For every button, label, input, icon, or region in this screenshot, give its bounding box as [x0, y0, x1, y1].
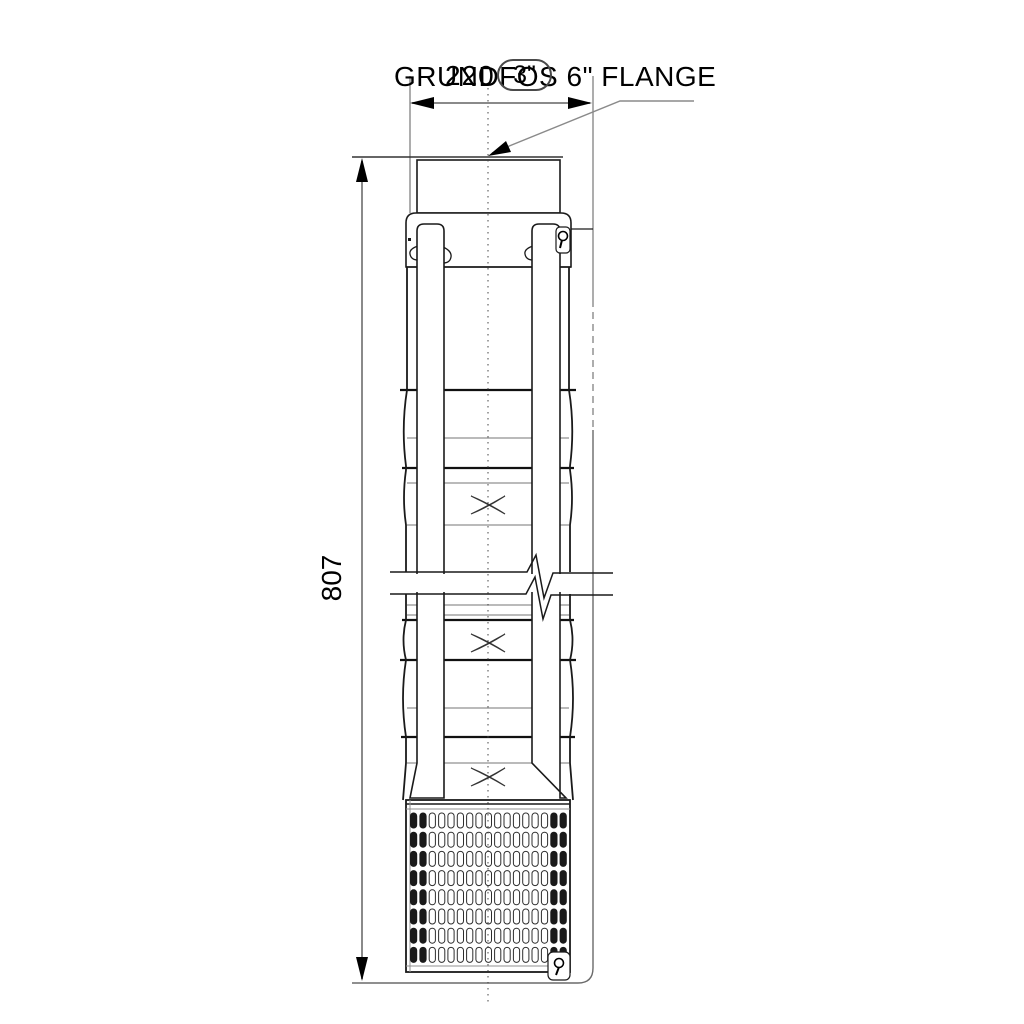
arrowhead-left: [410, 97, 434, 109]
screw-bottom: [548, 952, 570, 980]
height-dimension-label: 807: [318, 546, 348, 610]
plate-mark-dot: [408, 238, 411, 241]
connection-size-badge: 3": [497, 59, 552, 91]
x-marker: [471, 634, 505, 652]
cable-guard-right: [525, 224, 566, 798]
dimensional-drawing-canvas: GRUNDFOS 6" FLANGE 220 3" 807: [0, 0, 1024, 1024]
arrowhead-up: [356, 158, 368, 182]
arrowhead-right: [568, 97, 592, 109]
connection-size-label: 3": [513, 61, 536, 90]
title-leader-line: [488, 101, 694, 156]
leader-arrowhead: [488, 141, 511, 156]
x-marker: [471, 768, 505, 786]
body-edge-left: [403, 267, 407, 800]
width-dimension-label: 220: [445, 62, 495, 90]
discharge-section: [417, 160, 560, 213]
guard-tube: [410, 224, 444, 798]
cable-guard-left: [410, 224, 451, 798]
guard-tube: [532, 224, 566, 798]
body-edge-right: [569, 267, 573, 800]
screw-top: [556, 227, 570, 253]
arrowhead-down: [356, 957, 368, 981]
pump-outline-drawing: [0, 0, 1024, 1024]
x-marker: [471, 496, 505, 514]
drawing-title: GRUNDFOS 6" FLANGE: [394, 63, 716, 91]
